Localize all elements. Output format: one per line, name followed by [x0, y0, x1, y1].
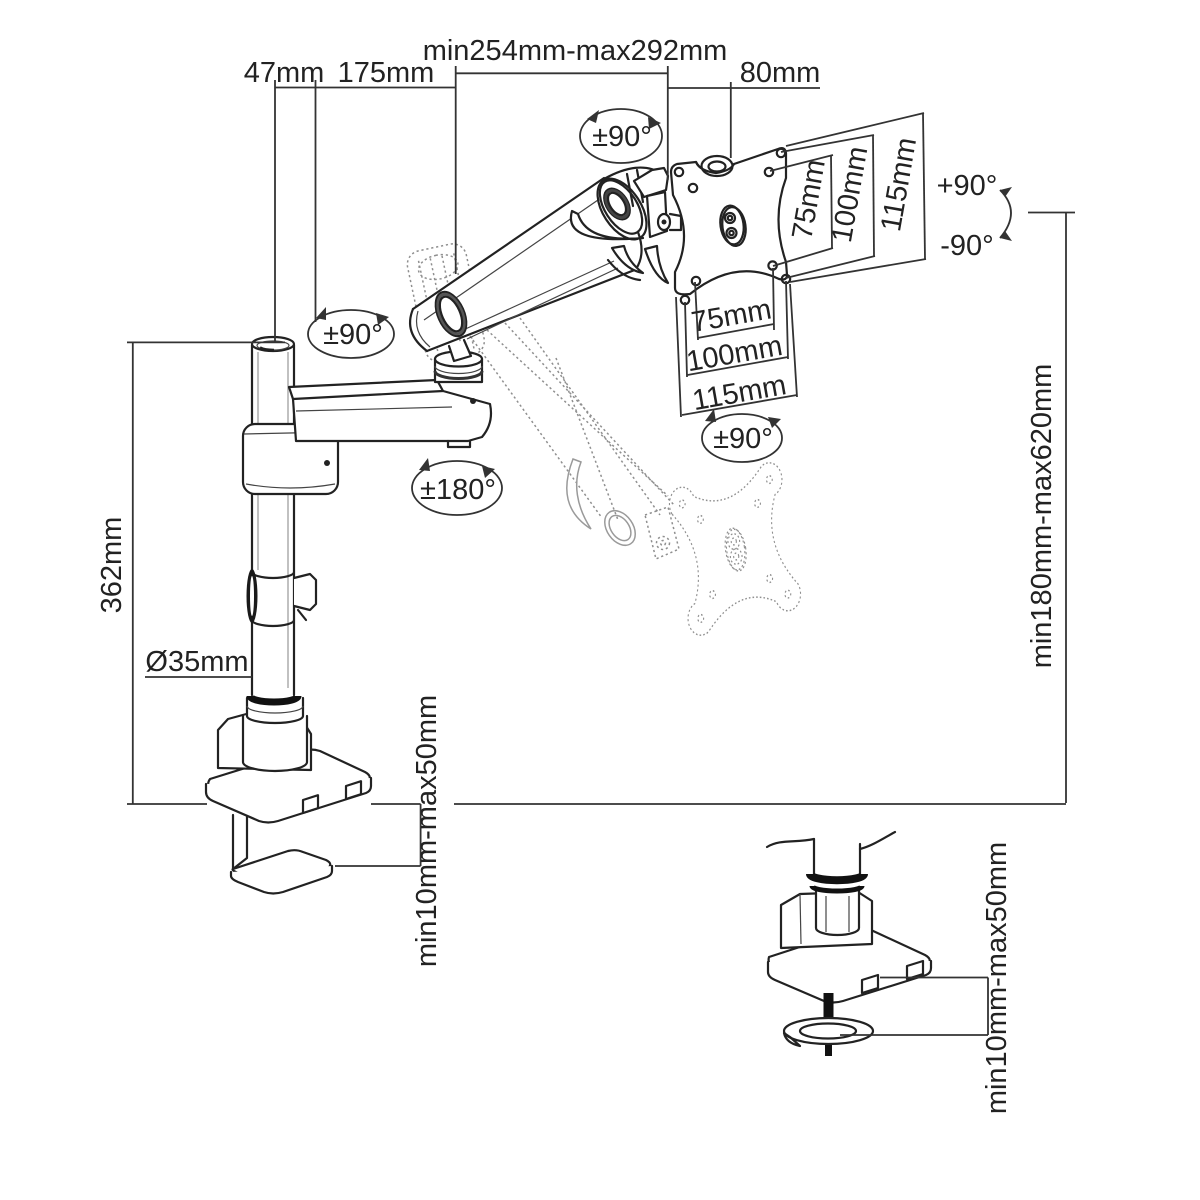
svg-text:47mm: 47mm: [244, 57, 325, 89]
svg-text:min10mm-max50mm: min10mm-max50mm: [411, 695, 443, 967]
svg-text:80mm: 80mm: [740, 57, 821, 89]
svg-text:-90°: -90°: [940, 230, 994, 262]
svg-text:min254mm-max292mm: min254mm-max292mm: [423, 35, 728, 67]
svg-text:±90°: ±90°: [713, 423, 773, 455]
svg-text:362mm: 362mm: [96, 517, 128, 614]
svg-text:±180°: ±180°: [420, 474, 496, 506]
svg-text:175mm: 175mm: [338, 57, 435, 89]
svg-text:±90°: ±90°: [323, 319, 383, 351]
svg-text:Ø35mm: Ø35mm: [145, 646, 248, 678]
svg-text:min10mm-max50mm: min10mm-max50mm: [981, 842, 1013, 1114]
svg-text:min180mm-max620mm: min180mm-max620mm: [1026, 364, 1058, 669]
svg-text:±90°: ±90°: [592, 121, 652, 153]
svg-text:+90°: +90°: [937, 170, 998, 202]
